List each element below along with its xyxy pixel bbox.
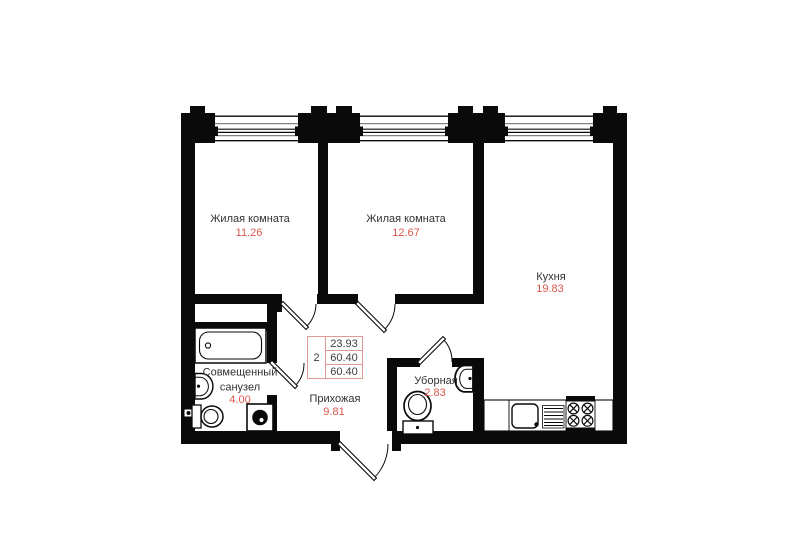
wall-tab — [483, 106, 498, 114]
wall-wc-left — [387, 358, 397, 431]
area-cell: 60.40 — [326, 351, 363, 365]
door-living-room-1 — [283, 304, 316, 327]
label-bathroom: Совмещенный санузел — [196, 366, 284, 395]
pier-top-left — [181, 113, 215, 143]
total-area-cell: 60.40 — [326, 365, 363, 379]
area-hallway: 9.81 — [323, 405, 344, 420]
wall-room2-kitchen — [473, 143, 484, 304]
wall-tab — [458, 106, 473, 114]
floor-plan-drawing — [0, 0, 800, 560]
windows-layer — [214, 115, 594, 142]
pier-top-middle-2 — [448, 113, 505, 143]
washing-machine — [247, 404, 273, 431]
pier-top-right — [593, 113, 627, 143]
wall-bottom-left — [181, 431, 340, 444]
wall-wc-top-left — [387, 358, 420, 367]
area-living-room-2: 12.67 — [392, 226, 420, 241]
label-living-room-2: Жилая комната — [366, 212, 445, 227]
door-entrance — [340, 444, 388, 478]
area-kitchen: 19.83 — [536, 282, 564, 297]
door-wc — [420, 339, 452, 362]
wall-tab — [190, 106, 205, 114]
living-area-cell: 23.93 — [326, 337, 363, 351]
kitchen-counter — [484, 396, 613, 431]
entry-jamb-right — [392, 444, 401, 451]
window-1 — [214, 115, 299, 142]
wall-room2-bottom — [395, 294, 484, 304]
wall-tab — [336, 106, 352, 114]
window-3 — [504, 115, 594, 142]
wall-wc-right — [473, 358, 484, 431]
label-living-room-1: Жилая комната — [210, 212, 289, 227]
wall-left — [181, 113, 195, 444]
bathtub — [195, 328, 266, 363]
area-wc: 2.83 — [424, 386, 445, 401]
wall-right — [613, 113, 627, 444]
wall-tab — [311, 106, 327, 114]
apartment-info-table: 2 23.93 60.40 60.40 — [307, 336, 363, 379]
area-living-room-1: 11.26 — [236, 226, 263, 241]
wall-rooms-divider — [318, 143, 328, 304]
rooms-count-cell: 2 — [308, 337, 326, 379]
pier-top-middle-1 — [298, 113, 360, 143]
area-bathroom: 4.00 — [229, 393, 250, 408]
door-living-room-2 — [358, 304, 395, 330]
wall-between-doors — [317, 294, 358, 304]
window-2 — [359, 115, 449, 142]
floor-plan: Жилая комната 11.26 Жилая комната 12.67 … — [0, 0, 800, 560]
wall-tab — [603, 106, 617, 114]
